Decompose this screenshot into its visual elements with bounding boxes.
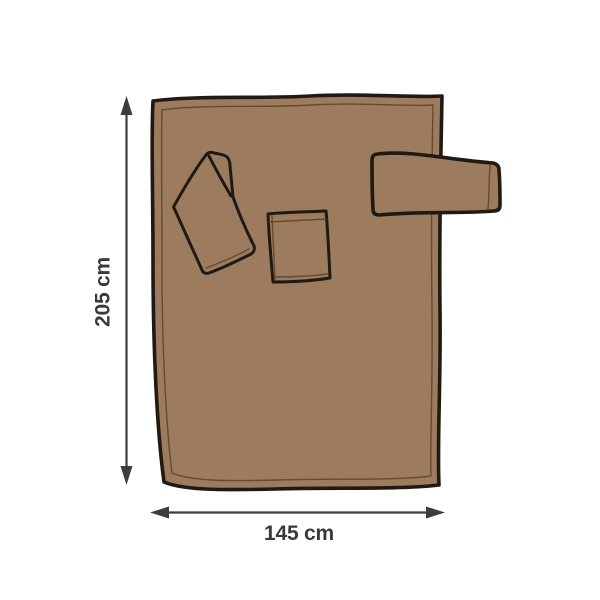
front-pocket — [268, 211, 330, 282]
width-arrow-head-left-icon — [150, 507, 169, 519]
blanket-illustration: 205 cm 145 cm — [0, 0, 600, 600]
width-dimension-label: 145 cm — [264, 522, 334, 545]
protruding-sleeve-shape — [372, 153, 500, 215]
height-dimension-label: 205 cm — [92, 257, 115, 327]
height-arrow-head-top-icon — [121, 96, 133, 115]
width-dimension-arrow: 145 cm — [150, 507, 445, 546]
width-arrow-head-right-icon — [426, 507, 445, 519]
protruding-sleeve — [372, 153, 500, 215]
blanket-dimension-diagram: 205 cm 145 cm — [0, 0, 600, 600]
height-dimension-arrow: 205 cm — [92, 96, 133, 485]
height-arrow-head-bottom-icon — [121, 466, 133, 485]
